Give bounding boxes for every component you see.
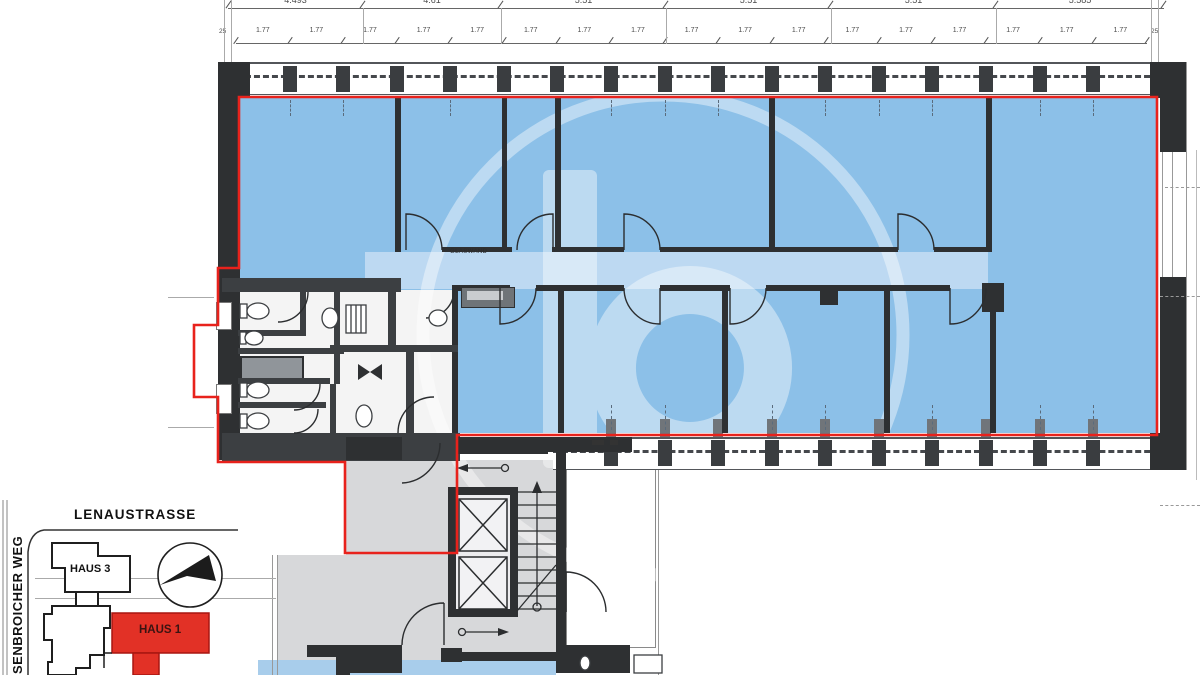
haus1-stub bbox=[133, 653, 159, 675]
arrow-head bbox=[457, 464, 468, 472]
double-door-icon bbox=[358, 364, 370, 380]
arrow-head bbox=[498, 628, 509, 636]
street-name-top: LENAUSTRASSE bbox=[74, 507, 196, 522]
door-arcs bbox=[278, 214, 986, 645]
plan-linework bbox=[0, 0, 1200, 675]
floorplan-scan: 4.4934.615.515.515.515.585 1.771.771.771… bbox=[0, 0, 1200, 675]
haus3-label: HAUS 3 bbox=[70, 563, 110, 575]
stair-treads bbox=[517, 488, 556, 611]
building-link bbox=[76, 592, 98, 606]
haus1-label: HAUS 1 bbox=[139, 624, 181, 636]
building-outline bbox=[44, 606, 110, 675]
elevator-icon bbox=[459, 499, 507, 609]
glaswand-label: GLASWAND bbox=[450, 249, 487, 255]
street-name-left: SENBROICHER WEG bbox=[10, 536, 25, 674]
unit-outline-red bbox=[194, 97, 1157, 553]
stair-direction-arrow bbox=[532, 481, 542, 493]
wc-fixtures bbox=[240, 303, 662, 673]
double-door-icon bbox=[370, 364, 382, 380]
site-map-linework bbox=[3, 500, 238, 675]
